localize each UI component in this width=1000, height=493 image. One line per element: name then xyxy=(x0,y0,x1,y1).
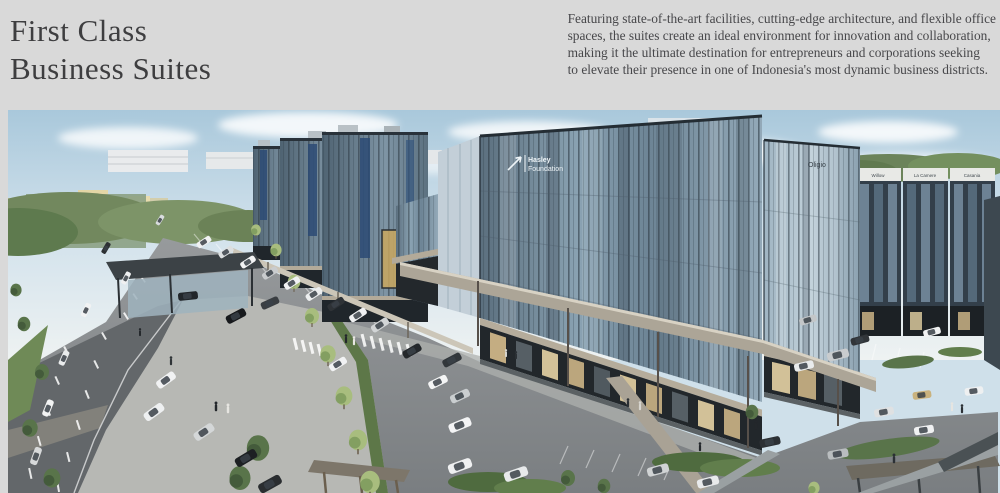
person xyxy=(515,351,517,359)
car xyxy=(874,406,895,418)
shophouse-sign: Casania xyxy=(964,173,981,178)
person xyxy=(227,404,230,414)
person xyxy=(961,404,964,413)
person xyxy=(639,401,642,410)
dark-structure-edge xyxy=(984,196,1000,370)
person xyxy=(139,328,141,336)
page-title-line: Business Suites xyxy=(10,50,211,88)
person xyxy=(893,454,896,464)
main-sign-line2: Foundation xyxy=(528,166,563,173)
rendering-illustration: Hasley Foundation Willow xyxy=(8,110,1000,493)
person xyxy=(755,420,758,429)
intro-paragraph: Featuring state-of-the-art facilities, c… xyxy=(568,10,996,78)
page-title: First Class Business Suites xyxy=(10,12,211,88)
person xyxy=(627,398,630,407)
intro-line: spaces, the suites create an ideal envir… xyxy=(568,27,996,44)
intro-line: making it the ultimate destination for e… xyxy=(568,44,996,61)
shophouse-sign: La Camere xyxy=(914,173,937,178)
page-title-line: First Class xyxy=(10,12,211,50)
person xyxy=(345,334,348,343)
business-suites-rendering: Hasley Foundation Willow xyxy=(8,110,1000,493)
shophouse-unit: Willow xyxy=(856,168,901,336)
intro-line: to elevate their presence in one of Indo… xyxy=(568,61,996,78)
right-tower-sign: Oligio xyxy=(808,162,826,169)
car xyxy=(964,386,984,396)
car xyxy=(759,436,781,449)
person xyxy=(215,402,218,412)
person xyxy=(951,402,954,411)
dropoff-shelter xyxy=(106,252,264,318)
person xyxy=(699,442,702,451)
main-sign-line1: Hasley xyxy=(528,157,551,164)
shophouse-sign: Willow xyxy=(872,173,886,178)
person xyxy=(505,349,507,357)
person xyxy=(170,356,173,365)
person xyxy=(353,336,356,345)
car xyxy=(912,390,932,400)
intro-line: Featuring state-of-the-art facilities, c… xyxy=(568,10,996,27)
shophouse-unit: La Camere xyxy=(903,168,948,336)
